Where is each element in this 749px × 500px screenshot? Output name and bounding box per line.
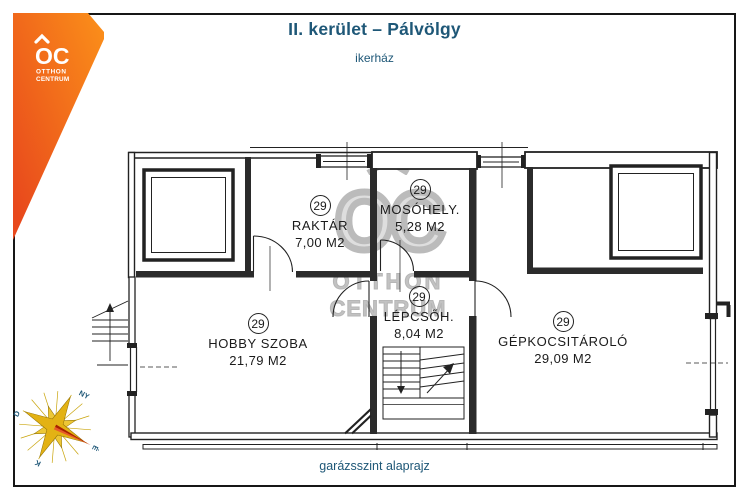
room-area: 29,09 M2	[483, 351, 643, 366]
room-label-hobby: 29 HOBBY SZOBA 21,79 M2	[193, 313, 323, 368]
compass-label-east: K	[33, 458, 42, 469]
room-area: 5,28 M2	[355, 219, 485, 234]
compass-rose: É NY D K	[8, 381, 102, 477]
compass-label-south: D	[12, 409, 23, 418]
floorplan-page: { "header": { "title": "II. kerület – Pá…	[0, 0, 749, 500]
room-area: 7,00 M2	[255, 235, 385, 250]
room-label-stairwell: 29 LÉPCSŐH. 8,04 M2	[354, 286, 484, 341]
room-name: GÉPKOCSITÁROLÓ	[483, 334, 643, 349]
light-well-right	[611, 166, 701, 258]
room-label-laundry: 29 MOSÓHELY. 5,28 M2	[355, 179, 485, 234]
terrace-edge	[143, 443, 717, 450]
staircase	[383, 347, 464, 419]
door-arc-laundry	[381, 240, 414, 292]
compass-label-north: É	[90, 444, 100, 453]
window-left	[127, 343, 177, 396]
logo-word-1: OTTHON	[36, 69, 67, 76]
logo-word-2: CENTRUM	[36, 76, 69, 83]
logo-monogram: OC	[35, 43, 70, 69]
room-area: 21,79 M2	[193, 353, 323, 368]
room-area: 8,04 M2	[354, 326, 484, 341]
room-number-badge: 29	[410, 179, 431, 200]
room-number-badge: 29	[553, 311, 574, 332]
room-name: MOSÓHELY.	[355, 202, 485, 217]
brand-ribbon-logo: OC OTTHON CENTRUM	[0, 0, 120, 250]
room-number-badge: 29	[409, 286, 430, 307]
plan-caption: garázsszint alaprajz	[0, 459, 749, 473]
light-well-left	[144, 170, 233, 260]
corner-brace	[345, 409, 371, 434]
room-label-garage: 29 GÉPKOCSITÁROLÓ 29,09 M2	[483, 311, 643, 366]
room-number-badge: 29	[248, 313, 269, 334]
room-name: LÉPCSŐH.	[354, 309, 484, 324]
window-right	[686, 313, 728, 415]
room-name: HOBBY SZOBA	[193, 336, 323, 351]
exterior-steps	[92, 301, 128, 365]
room-number-badge: 29	[310, 195, 331, 216]
compass-label-west: NY	[77, 388, 90, 401]
